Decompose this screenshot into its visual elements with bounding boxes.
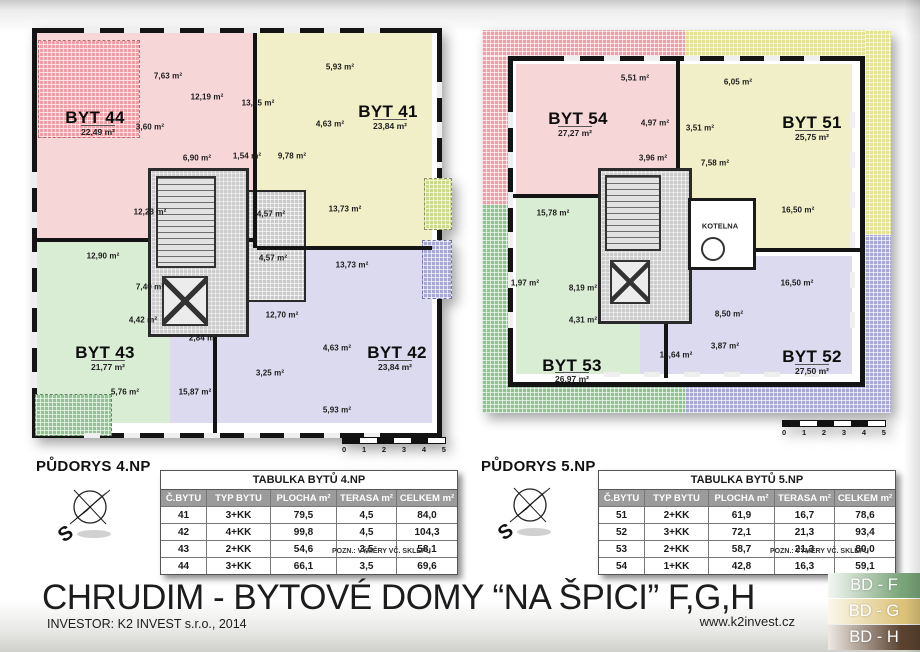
col-header: PLOCHA m² xyxy=(709,490,775,507)
col-header: Č.BYTU xyxy=(161,490,207,507)
cell: 61,9 xyxy=(709,507,775,524)
room-area-label: 4,63 m² xyxy=(323,344,351,353)
apartment-area: 27,27 m² xyxy=(558,126,592,138)
table-header-row: Č.BYTU TYP BYTU PLOCHA m² TERASA m² CELK… xyxy=(599,490,895,507)
terrace-byt52-bottom xyxy=(685,387,891,413)
col-header: CELKEM m² xyxy=(397,490,457,507)
scale-tick: 2 xyxy=(382,445,386,454)
compass-south-label: S xyxy=(58,521,78,544)
col-header: Č.BYTU xyxy=(599,490,645,507)
room-area-label: 3,60 m² xyxy=(136,123,164,132)
cell: 44 xyxy=(161,558,207,574)
apartment-area: 27,50 m² xyxy=(795,364,829,376)
compass-icon: S xyxy=(498,480,558,542)
scale-tick: 3 xyxy=(402,445,406,454)
room-area-label: 2,84 m² xyxy=(189,334,217,343)
room-area-label: 4,57 m² xyxy=(257,210,285,219)
room-area-label: 9,78 m² xyxy=(278,152,306,161)
room-area-label: 4,31 m² xyxy=(569,316,597,325)
cell: 54,6 xyxy=(271,541,337,558)
room-area-label: 16,50 m² xyxy=(781,279,814,288)
col-header: TYP BYTU xyxy=(645,490,709,507)
cell: 104,3 xyxy=(397,524,457,541)
cell: 93,4 xyxy=(835,524,895,541)
room-area-label: 12,23 m² xyxy=(134,208,167,217)
cell: 43 xyxy=(161,541,207,558)
page-title: CHRUDIM - BYTOVÉ DOMY “NA ŠPICI” F,G,H xyxy=(42,578,755,618)
cell: 53 xyxy=(599,541,645,558)
scale-tick: 1 xyxy=(362,445,366,454)
cell: 3+KK xyxy=(207,507,271,524)
room-area-label: 7,58 m² xyxy=(701,159,729,168)
scale-tick: 5 xyxy=(882,428,886,437)
cell: 79,5 xyxy=(271,507,337,524)
col-header: CELKEM m² xyxy=(835,490,895,507)
terrace-byt54-top xyxy=(482,30,685,56)
room-area-label: 7,40 m² xyxy=(136,283,164,292)
cell: 16,3 xyxy=(775,558,835,574)
room-area-label: 4,57 m² xyxy=(259,254,287,263)
cell: 2+KK xyxy=(207,541,271,558)
windows-right xyxy=(850,88,855,348)
cell: 4,5 xyxy=(337,507,397,524)
col-header: TERASA m² xyxy=(775,490,835,507)
room-area-label: 5,93 m² xyxy=(323,406,351,415)
cell: 3+KK xyxy=(645,524,709,541)
table-title: TABULKA BYTŮ 4.NP xyxy=(161,471,457,490)
room-area-label: 5,76 m² xyxy=(111,388,139,397)
cell: 2+KK xyxy=(645,507,709,524)
scale-tick: 4 xyxy=(862,428,866,437)
apartment-area: 25,75 m² xyxy=(795,130,829,142)
scale-bar: 012345 xyxy=(782,420,886,437)
page-edge-shading xyxy=(904,0,920,652)
staircase-icon xyxy=(156,176,216,268)
cell: 52 xyxy=(599,524,645,541)
legend-item-bd-h: BD - H xyxy=(828,625,920,650)
cell: 3+KK xyxy=(207,558,271,574)
scale-tick: 0 xyxy=(342,445,346,454)
room-area-label: 13,73 m² xyxy=(336,261,369,270)
scale-tick: 0 xyxy=(782,428,786,437)
cell: 2+KK xyxy=(645,541,709,558)
compass-icon: S xyxy=(58,482,118,544)
room-area-label: 5,93 m² xyxy=(326,63,354,72)
scale-tick: 3 xyxy=(842,428,846,437)
staircase-icon xyxy=(605,175,661,251)
boiler-room xyxy=(688,198,756,270)
room-area-label: 4,42 m² xyxy=(129,316,157,325)
table-row: 413+KK79,54,584,0 xyxy=(161,507,457,524)
legend-item-bd-f: BD - F xyxy=(828,573,920,598)
col-header: TYP BYTU xyxy=(207,490,271,507)
wall xyxy=(257,246,432,250)
windows-left xyxy=(32,148,37,388)
room-area-label: 3,87 m² xyxy=(711,342,739,351)
balcony-byt41 xyxy=(424,178,452,230)
room-area-label: 7,63 m² xyxy=(154,72,182,81)
table-row: 541+KK42,816,359,1 xyxy=(599,558,895,574)
scale-tick: 2 xyxy=(822,428,826,437)
terrace-byt43 xyxy=(35,394,112,436)
plan-caption-4np: PŮDORYS 4.NP xyxy=(36,458,151,475)
cell: 58,7 xyxy=(709,541,775,558)
cell: 3,5 xyxy=(337,558,397,574)
cell: 78,6 xyxy=(835,507,895,524)
cell: 16,7 xyxy=(775,507,835,524)
terrace-byt53-bottom xyxy=(482,387,685,413)
room-area-label: 6,90 m² xyxy=(183,154,211,163)
apartment-area: 22,49 m² xyxy=(81,125,115,137)
cell: 66,1 xyxy=(271,558,337,574)
scale-bar-strip xyxy=(342,437,446,444)
legend-item-bd-g: BD - G xyxy=(828,599,920,624)
building-legend: BD - F BD - G BD - H xyxy=(828,573,920,651)
apartment-table-5np: TABULKA BYTŮ 5.NP Č.BYTU TYP BYTU PLOCHA… xyxy=(598,470,896,575)
terrace-byt53-left xyxy=(482,205,508,413)
elevator-icon xyxy=(610,260,650,304)
scale-tick: 5 xyxy=(442,445,446,454)
cell: 4,5 xyxy=(337,524,397,541)
windows-top xyxy=(60,28,400,33)
room-area-label: 3,25 m² xyxy=(256,369,284,378)
cell: 69,6 xyxy=(397,558,457,574)
floorplan-4np: BYT 44 22,49 m² BYT 41 23,84 m² BYT 43 2… xyxy=(30,18,455,455)
table-row: 443+KK66,13,569,6 xyxy=(161,558,457,574)
table-header-row: Č.BYTU TYP BYTU PLOCHA m² TERASA m² CELK… xyxy=(161,490,457,507)
scale-tick: 1 xyxy=(802,428,806,437)
plan-sheet: { "plans": [ { "title": "PŮDORYS 4.NP", … xyxy=(0,0,920,652)
room-area-label: 16,50 m² xyxy=(782,206,815,215)
room-area-label: 13,25 m² xyxy=(242,99,275,108)
terrace-byt52-right xyxy=(865,235,891,413)
table-note: POZN.: VÝMĚRY VČ. SKLEPU xyxy=(770,548,869,555)
room-area-label: 13,64 m² xyxy=(660,351,693,360)
apartment-table-4np: TABULKA BYTŮ 4.NP Č.BYTU TYP BYTU PLOCHA… xyxy=(160,470,458,575)
cell: 84,0 xyxy=(397,507,457,524)
apartment-area: 26,97 m² xyxy=(555,372,589,384)
boiler-icon xyxy=(701,237,725,261)
windows-left xyxy=(508,88,513,348)
terrace-byt54-left xyxy=(482,56,508,205)
cell: 42 xyxy=(161,524,207,541)
plan-caption-5np: PŮDORYS 5.NP xyxy=(481,458,596,475)
windows-right xyxy=(437,58,442,168)
room-area-label: 13,73 m² xyxy=(329,205,362,214)
table-note: POZN.: VÝMĚRY VČ. SKLEPU xyxy=(332,548,431,555)
room-area-label: 6,05 m² xyxy=(724,78,752,87)
cell: 1+KK xyxy=(645,558,709,574)
room-area-label: 5,51 m² xyxy=(621,74,649,83)
room-area-label: 3,96 m² xyxy=(639,154,667,163)
room-area-label: 8,50 m² xyxy=(715,310,743,319)
room-area-label: 1,97 m² xyxy=(511,279,539,288)
room-area-label: 8,19 m² xyxy=(569,284,597,293)
cell: 54 xyxy=(599,558,645,574)
compass-south-label: S xyxy=(498,519,518,542)
room-area-label: 1,54 m² xyxy=(233,152,261,161)
room-area-label: 4,63 m² xyxy=(316,120,344,129)
room-area-label: 15,87 m² xyxy=(179,388,212,397)
room-area-label: 12,19 m² xyxy=(191,93,224,102)
apartment-area: 23,84 m² xyxy=(378,360,412,372)
cell: 59,1 xyxy=(835,558,895,574)
scale-tick: 4 xyxy=(422,445,426,454)
cell: 99,8 xyxy=(271,524,337,541)
room-area-label: 12,70 m² xyxy=(266,311,299,320)
cell: 4+KK xyxy=(207,524,271,541)
elevator-icon xyxy=(162,276,208,326)
terrace-byt51-top xyxy=(685,30,891,56)
terrace-byt51-right xyxy=(865,30,891,235)
cell: 72,1 xyxy=(709,524,775,541)
room-area-label: 4,97 m² xyxy=(641,119,669,128)
investor-line: INVESTOR: K2 INVEST s.r.o., 2014 xyxy=(47,617,247,631)
col-header: PLOCHA m² xyxy=(271,490,337,507)
windows-top xyxy=(540,56,830,61)
table-row: 424+KK99,84,5104,3 xyxy=(161,524,457,541)
room-area-label: 12,90 m² xyxy=(87,252,120,261)
cell: 42,8 xyxy=(709,558,775,574)
scale-bar-strip xyxy=(782,420,886,427)
boiler-room-label: KOTELNA xyxy=(702,222,738,231)
cell: 51 xyxy=(599,507,645,524)
table-title: TABULKA BYTŮ 5.NP xyxy=(599,471,895,490)
website-url: www.k2invest.cz xyxy=(655,614,795,629)
cell: 41 xyxy=(161,507,207,524)
floorplan-5np: KOTELNA BYT 54 27,27 m² BYT 51 25,75 m² … xyxy=(480,28,895,440)
apartment-area: 23,84 m² xyxy=(373,119,407,131)
table-row: 523+KK72,121,393,4 xyxy=(599,524,895,541)
table-row: 512+KK61,916,778,6 xyxy=(599,507,895,524)
scale-bar: 012345 xyxy=(342,437,446,454)
room-area-label: 15,78 m² xyxy=(537,209,570,218)
col-header: TERASA m² xyxy=(337,490,397,507)
room-area-label: 3,51 m² xyxy=(686,124,714,133)
apartment-area: 21,77 m² xyxy=(91,360,125,372)
cell: 21,3 xyxy=(775,524,835,541)
